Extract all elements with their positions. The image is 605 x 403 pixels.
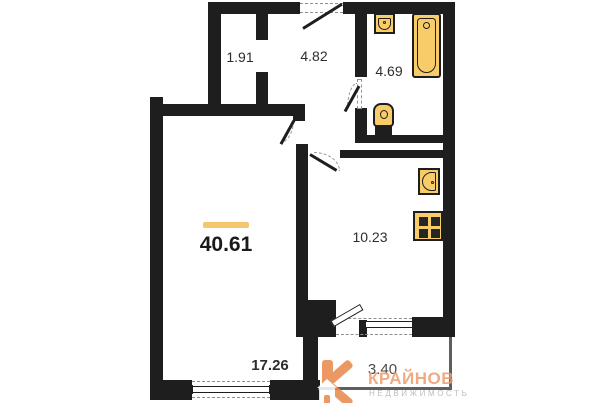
- wall-living-top: [150, 104, 305, 116]
- wall-closet-divider-bottom: [256, 72, 268, 104]
- wall-right-outer: [443, 2, 455, 337]
- toilet-tank: [375, 126, 392, 136]
- living-window-dash: [192, 381, 270, 382]
- entrance-door-leaf: [302, 3, 343, 30]
- bathroom-sink-icon: [374, 13, 395, 34]
- living-window-post: [269, 385, 276, 394]
- wall-junction-block: [296, 300, 336, 337]
- logo-subtitle: НЕДВИЖИМОСТЬ: [369, 389, 470, 398]
- room-area-hallway: 4.82: [289, 48, 339, 64]
- wall-kitchen-top: [340, 150, 445, 158]
- logo-title: КРАЙНОВ: [368, 369, 454, 389]
- room-area-living: 17.26: [240, 357, 300, 374]
- wall-kitchen-bottom-right: [412, 317, 455, 337]
- living-window-dash: [192, 397, 270, 398]
- room-area-closet: 1.91: [215, 49, 265, 65]
- wall-bath-left-bottom: [355, 108, 367, 135]
- logo-k-house-icon: [320, 360, 362, 403]
- brand-logo: КРАЙНОВ НЕДВИЖИМОСТЬ: [316, 358, 466, 403]
- balcony-door-dash: [336, 334, 412, 335]
- wall-bath-bottom: [355, 135, 455, 143]
- wall-closet-divider-top: [256, 14, 268, 40]
- total-area-accent-bar: [203, 222, 249, 228]
- living-window: [192, 386, 270, 393]
- stove-icon: [413, 211, 443, 241]
- total-area-value: 40.61: [191, 233, 261, 257]
- wall-left-outer: [150, 97, 163, 400]
- wall-top-left: [208, 2, 300, 14]
- balcony-window: [366, 321, 412, 328]
- kitchen-sink-icon: [418, 168, 440, 195]
- wall-doorway-stub: [293, 104, 305, 121]
- entrance-door-dash: [300, 12, 343, 13]
- bathroom-door-panel: [357, 79, 362, 109]
- floor-plan: 1.91 4.82 4.69 10.23 17.26 3.40 40.61 КР…: [0, 0, 605, 403]
- entrance-door-dash: [300, 3, 343, 4]
- bathtub-icon: [412, 13, 441, 78]
- wall-central: [296, 144, 308, 320]
- room-area-bathroom: 4.69: [364, 63, 414, 79]
- living-window-post: [186, 385, 193, 394]
- toilet-icon: [373, 103, 394, 127]
- wall-living-bottom-right: [270, 380, 320, 400]
- room-area-kitchen: 10.23: [340, 229, 400, 245]
